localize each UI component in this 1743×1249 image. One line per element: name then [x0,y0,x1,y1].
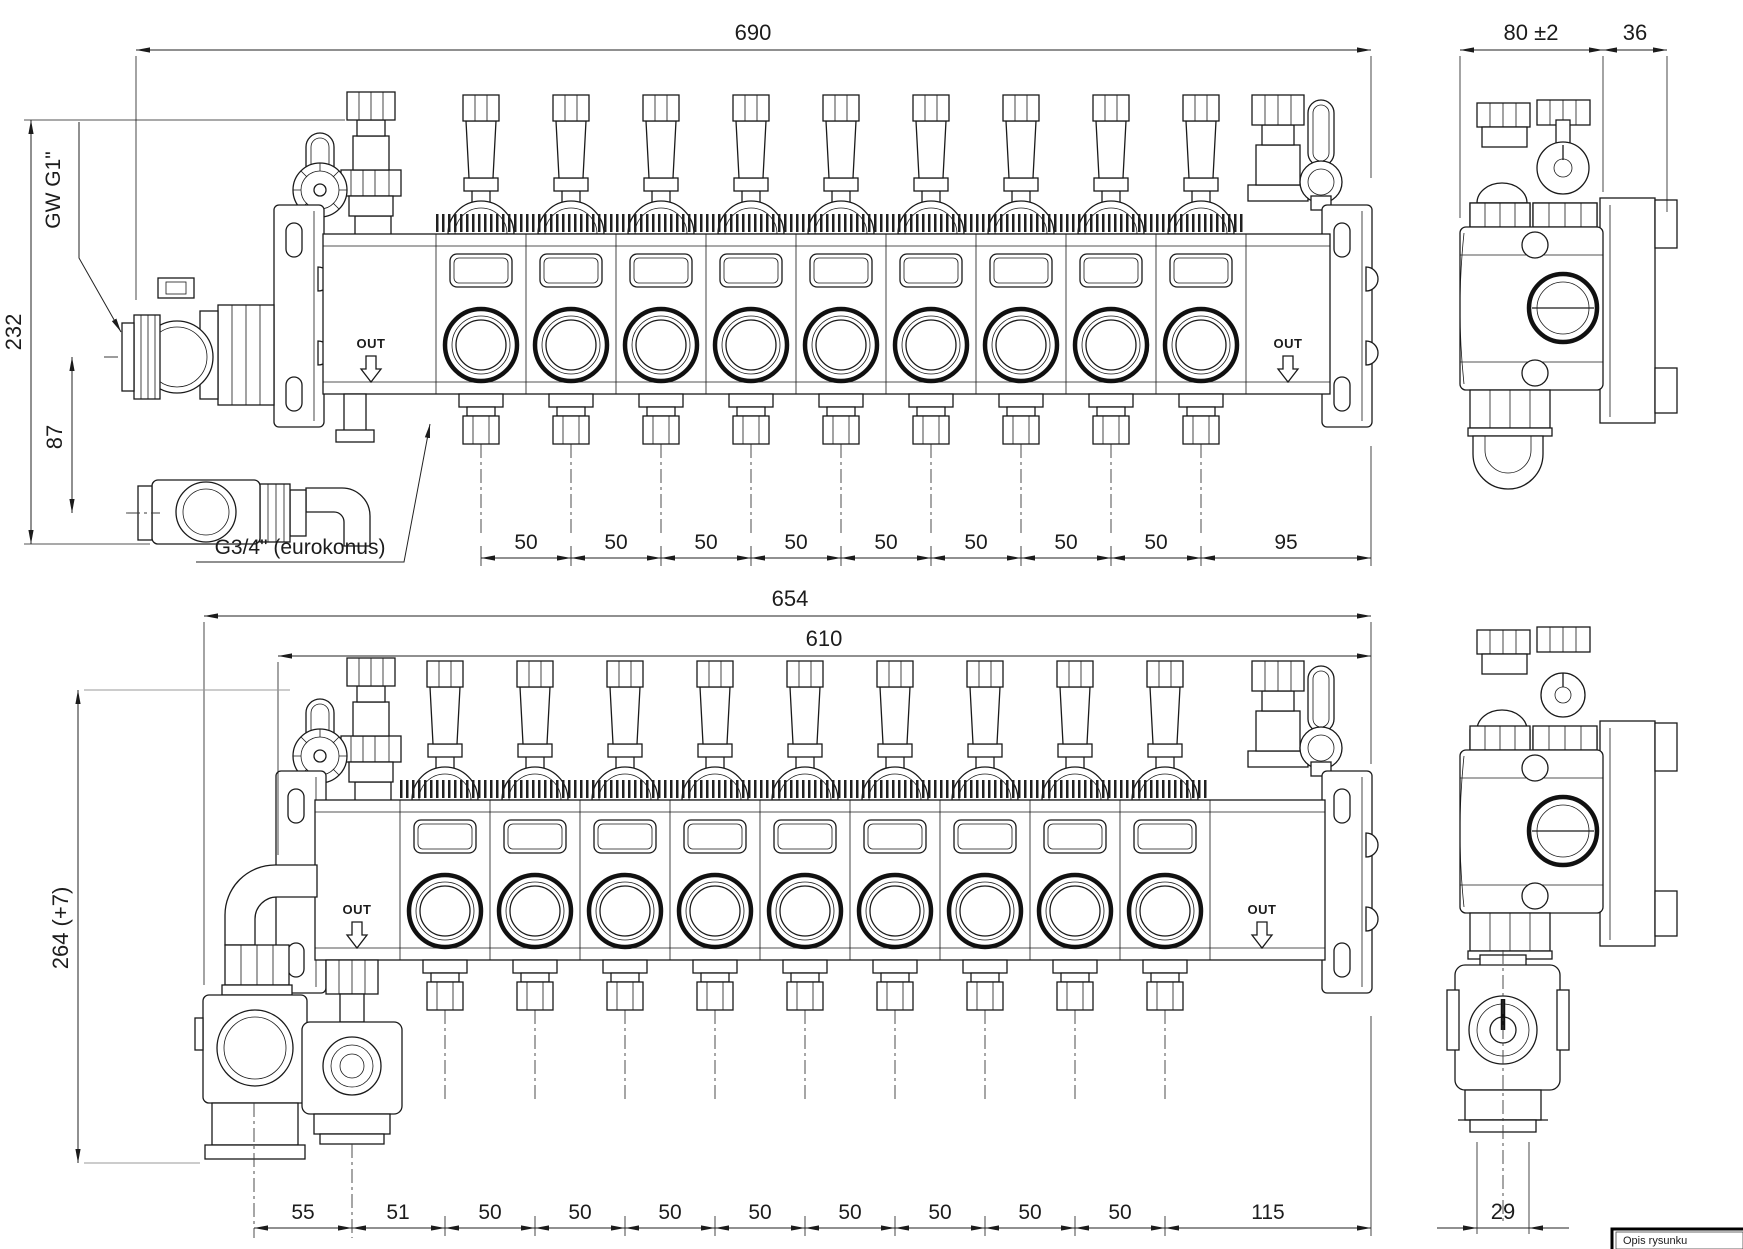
dim-spacing: 50 [604,531,627,554]
dim-spacing: 50 [928,1201,951,1224]
dim-inlet-offset: 87 [42,425,67,449]
inlet-thread-label: GW G1" [42,151,65,228]
dim-bracket-offset: 36 [1623,20,1647,45]
dim-spacing: 50 [658,1201,681,1224]
title-block-label: Opis rysunku [1623,1235,1687,1247]
wall-bracket-left-top [274,205,330,427]
dim-spacing: 50 [784,531,807,554]
top-view: OUT OUT [104,92,1378,546]
dim-spacing: 50 [1144,531,1167,554]
dim-mount-width-bottom: 610 [806,626,843,651]
wall-bracket-right-bottom [1322,771,1378,993]
dim-spacing: 50 [964,531,987,554]
dim-spacing: 50 [478,1201,501,1224]
loop-towers-top [448,95,1234,234]
end-ball-valve-bottom [1248,661,1342,776]
side-view-bottom: 29 [1437,627,1677,1234]
loop-towers-bottom [412,661,1198,800]
pump-valve-ball [217,1010,293,1086]
manifold-technical-drawing: OUT OUT [0,0,1743,1249]
dim-spacing: 50 [874,531,897,554]
drain-valve-top-view [126,394,374,546]
dim-overall-height-bottom: 264 (+7) [48,887,73,970]
drain-valve-ball [176,482,236,542]
dim-spacing: 115 [1251,1201,1284,1224]
out-label-left-top: OUT [357,336,386,351]
dim-spacing: 50 [1054,531,1077,554]
dim-spacing: 50 [748,1201,771,1224]
dim-spacing: 50 [514,531,537,554]
dim-overall-height-top: 232 [1,314,26,351]
dim-spacing: 50 [838,1201,861,1224]
dim-spacing: 50 [1018,1201,1041,1224]
dim-spacing: 51 [386,1201,409,1224]
dim-valve-offset: 29 [1491,1199,1515,1224]
dim-spacing: 50 [568,1201,591,1224]
dim-spacing: 95 [1274,531,1297,554]
bottom-view: OUT OUT [195,658,1378,1238]
dim-depth: 80 ±2 [1504,20,1559,45]
end-ball-valve-top [1248,95,1342,210]
inlet-ball-valve [104,278,274,405]
outlet-thread-label: G3/4" (eurokonus) [215,536,386,559]
side-pump-valve [1447,950,1569,1225]
dim-overall-width-top: 690 [735,20,772,45]
dim-overall-width-bottom: 654 [772,586,809,611]
title-block: Opis rysunku [1612,1229,1743,1249]
dim-spacing: 55 [291,1201,314,1224]
side-view-top: 80 ±2 36 [1460,20,1677,489]
drawing-sheet: OUT OUT [0,0,1743,1249]
side-bottom-elbow [1473,436,1543,489]
dim-spacing: 50 [694,531,717,554]
dim-spacing: 50 [1108,1201,1131,1224]
out-label-right-bottom: OUT [1248,902,1277,917]
out-label-right-top: OUT [1274,336,1303,351]
out-label-left-bottom: OUT [343,902,372,917]
